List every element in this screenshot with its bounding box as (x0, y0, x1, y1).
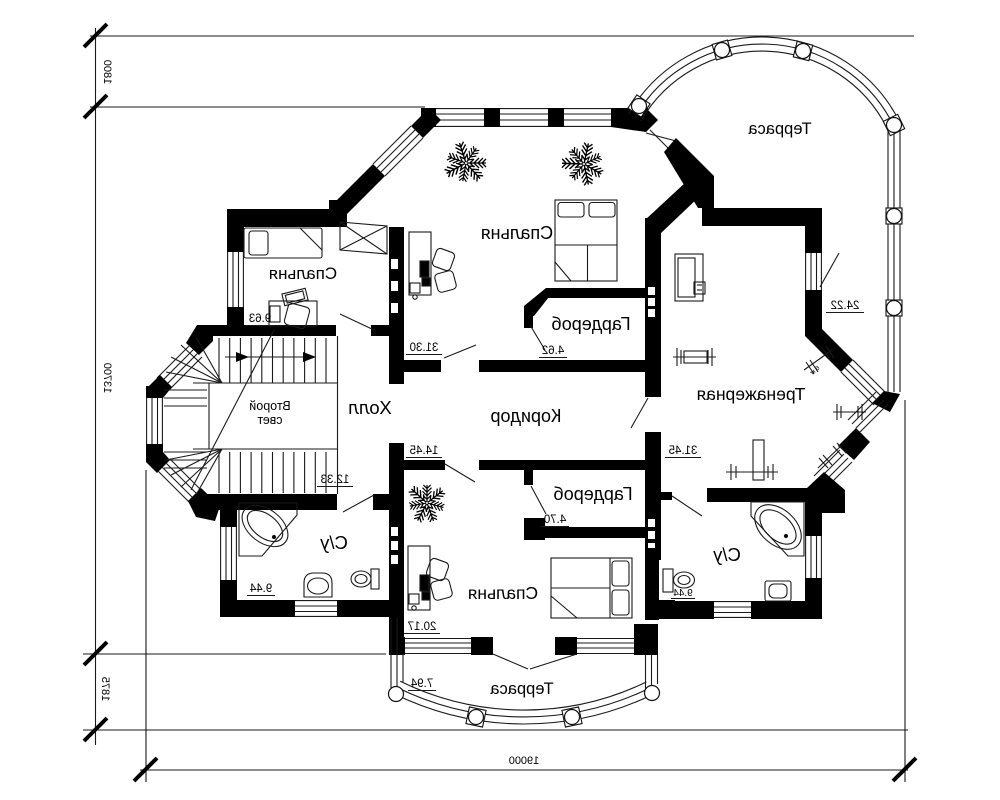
svg-text:14.45: 14.45 (410, 445, 439, 457)
svg-text:Второй: Второй (249, 399, 290, 413)
svg-text:Терраса: Терраса (490, 680, 554, 698)
svg-text:1875: 1875 (99, 677, 111, 701)
svg-text:Спальня: Спальня (481, 223, 553, 243)
svg-text:Терраса: Терраса (748, 120, 812, 138)
svg-text:13700: 13700 (101, 363, 113, 394)
svg-text:20.17: 20.17 (408, 621, 437, 633)
svg-text:С/у: С/у (712, 544, 741, 565)
svg-text:Холл: Холл (348, 397, 392, 418)
svg-text:7.94: 7.94 (410, 678, 433, 690)
svg-text:Гардероб: Гардероб (551, 314, 630, 334)
svg-text:12.33: 12.33 (321, 474, 350, 486)
svg-text:31.30: 31.30 (410, 342, 439, 354)
svg-text:4.62: 4.62 (542, 345, 564, 357)
svg-text:1800: 1800 (101, 60, 113, 84)
svg-text:9.44: 9.44 (249, 583, 272, 595)
svg-text:24.22: 24.22 (831, 300, 860, 312)
svg-text:9.44: 9.44 (673, 588, 693, 599)
svg-text:Тренажерная: Тренажерная (697, 384, 806, 404)
svg-text:31.45: 31.45 (669, 445, 698, 457)
svg-text:свет: свет (257, 413, 282, 427)
svg-text:Спальня: Спальня (468, 583, 538, 603)
svg-text:9.63: 9.63 (249, 313, 271, 325)
svg-text:Спальня: Спальня (269, 264, 337, 283)
svg-text:С/у: С/у (319, 532, 348, 553)
svg-text:4.70: 4.70 (544, 514, 566, 526)
svg-text:19000: 19000 (509, 755, 540, 767)
svg-text:Гардероб: Гардероб (553, 484, 632, 504)
svg-text:Коридор: Коридор (490, 406, 561, 426)
